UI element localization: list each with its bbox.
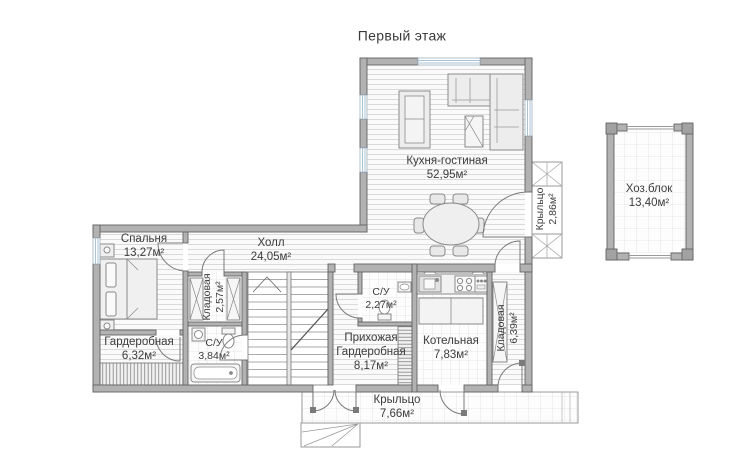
floorplan-page: Первый этаж Кухня-гостиная 52,95м² Холл … (0, 0, 740, 474)
label-dressing: Гардеробная 6,32м² (104, 335, 174, 363)
porch-main (301, 392, 578, 447)
page-title-text: Первый этаж (358, 27, 446, 44)
boiler-unit (475, 276, 487, 292)
nightstand-top (100, 244, 114, 257)
wardrobe-dressing (100, 363, 183, 385)
floorplan-canvas (0, 0, 740, 474)
bathtub (191, 364, 240, 382)
utility-block-gate-top (627, 127, 674, 130)
label-porch-side: Крыльцо 2,86м² (534, 188, 560, 231)
label-utility-block: Хоз.блок 13,40м² (626, 182, 673, 210)
coffee-table (465, 116, 483, 147)
label-porch-main: Крыльцо 7,66м² (374, 393, 421, 421)
utility-block-gate-bottom (629, 256, 671, 259)
label-hall: Холл 24,05м² (251, 236, 292, 264)
window-kitchen-right (525, 100, 532, 136)
label-bathroom-small: С/У 2,27м² (365, 286, 396, 312)
armchair (399, 91, 430, 148)
label-bathroom-main: С/У 3,84м² (198, 337, 229, 363)
sink-small (398, 282, 411, 292)
label-bedroom: Спальня 13,27м² (121, 232, 167, 260)
label-pantry-boiler: Кладовая 6,39м² (495, 304, 521, 351)
page-title: Первый этаж (358, 27, 446, 44)
bed (100, 259, 157, 319)
label-kitchen-living: Кухня-гостиная 52,95м² (406, 154, 487, 182)
porch-main-steps (301, 423, 360, 447)
window-bedroom (93, 238, 100, 264)
window-kitchen-left-2 (360, 148, 367, 172)
window-kitchen-top (418, 58, 480, 65)
label-boiler-room: Котельная 7,83м² (423, 334, 479, 362)
window-kitchen-left-1 (360, 95, 367, 119)
label-entry: Прихожая Гардеробная 8,17м² (336, 331, 406, 373)
label-pantry-hall: Кладовая 2,57м² (201, 273, 227, 320)
stove (455, 276, 475, 292)
